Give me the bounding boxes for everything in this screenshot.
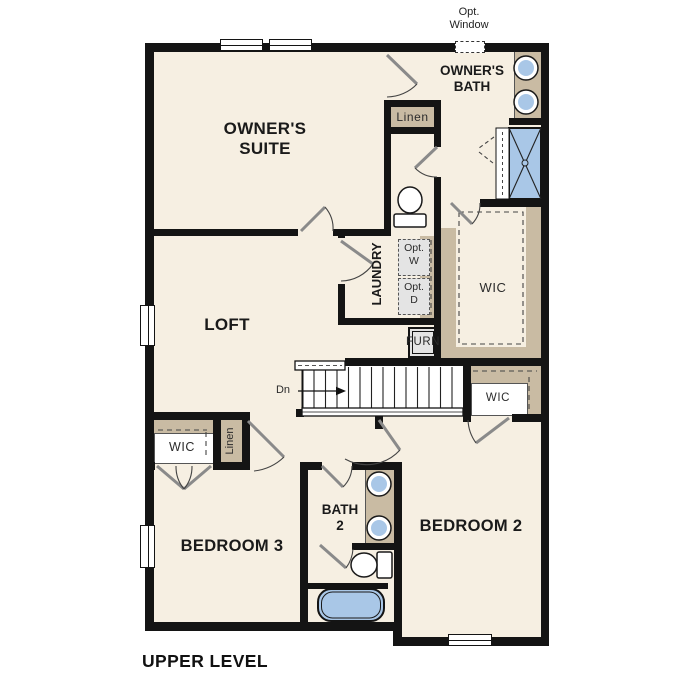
plan-title: UPPER LEVEL bbox=[142, 651, 342, 672]
wic-owner-band-right bbox=[526, 207, 541, 362]
wall-laundry-right bbox=[434, 236, 441, 325]
closet-label-linen-hall: Linen bbox=[391, 110, 434, 124]
room-label-laundry: LAUNDRY bbox=[369, 229, 385, 319]
wall-wic-bed2-bottom bbox=[512, 414, 541, 422]
owners-bath-vanity bbox=[514, 52, 541, 122]
opt-window-label: Opt. Window bbox=[438, 6, 500, 32]
wall-corridor-left bbox=[384, 100, 391, 236]
wall-bath2-tub-edge bbox=[308, 583, 388, 589]
wall-vanity-bottom-owner bbox=[509, 118, 541, 125]
window-pane-line bbox=[221, 45, 262, 46]
closet-label-wic-owner: WIC bbox=[461, 280, 525, 296]
wic-owner-band-left bbox=[441, 228, 456, 362]
wall-wc-right-upper bbox=[434, 100, 441, 147]
window-loft-left bbox=[140, 305, 155, 346]
furnace-label: FURN bbox=[403, 336, 443, 350]
wall-laundry-left-upper bbox=[338, 229, 345, 238]
closet-label-wic-bed2: WIC bbox=[468, 392, 528, 406]
wall-stairs-end bbox=[463, 358, 471, 422]
wall-stair-newel bbox=[296, 409, 304, 417]
window-pane-line bbox=[148, 526, 149, 567]
wall-linen-bottom bbox=[384, 127, 441, 134]
room-label-bedroom2: BEDROOM 2 bbox=[401, 517, 541, 537]
window-bedroom2-bottom bbox=[448, 634, 492, 646]
wic-bed2-band-top bbox=[471, 366, 541, 383]
room-label-bedroom3: BEDROOM 3 bbox=[162, 537, 302, 557]
wall-exterior-bottom-left bbox=[145, 622, 402, 631]
wall-exterior-top bbox=[145, 43, 549, 52]
wall-linen-top bbox=[384, 100, 441, 107]
wall-bath2-top-a bbox=[300, 462, 322, 470]
window-suite-top-1 bbox=[220, 39, 263, 51]
wall-bath2-vanity-bottom bbox=[352, 543, 402, 550]
wall-suite-bottom bbox=[154, 229, 298, 236]
room-label-bath2: BATH 2 bbox=[310, 502, 370, 534]
closet-label-linen-bed3: Linen bbox=[224, 418, 238, 464]
window-pane-line bbox=[270, 45, 311, 46]
window-pane-line bbox=[148, 306, 149, 345]
opt-window bbox=[455, 41, 485, 53]
wall-exterior-right bbox=[541, 43, 549, 646]
closet-label-wic-bed3: WIC bbox=[152, 440, 212, 455]
wic-bed2-band-right bbox=[526, 383, 541, 414]
window-bedroom3-left bbox=[140, 525, 155, 568]
window-pane-line bbox=[449, 640, 491, 641]
wall-strip-bottom-left bbox=[145, 462, 155, 470]
wall-wic-owner-top bbox=[480, 199, 541, 207]
room-label-owners-bath: OWNER'S BATH bbox=[432, 63, 512, 95]
floor-plan: Opt. Window OWNER'S SUITE OWNER'S BATH L… bbox=[0, 0, 687, 687]
room-label-loft: LOFT bbox=[187, 315, 267, 335]
opt-dryer-label: Opt. D bbox=[398, 281, 430, 307]
window-suite-top-2 bbox=[269, 39, 312, 51]
room-label-owners-suite: OWNER'S SUITE bbox=[195, 119, 335, 160]
wall-stairs-top bbox=[345, 358, 541, 366]
wall-wc-right-lower bbox=[434, 177, 441, 236]
wall-laundry-bottom bbox=[338, 318, 441, 325]
stairs-dn-label: Dn bbox=[271, 384, 295, 397]
opt-washer-label: Opt. W bbox=[398, 242, 430, 268]
wic-bed3-band-top bbox=[154, 420, 213, 433]
wall-bed2-door-stub bbox=[375, 416, 383, 429]
